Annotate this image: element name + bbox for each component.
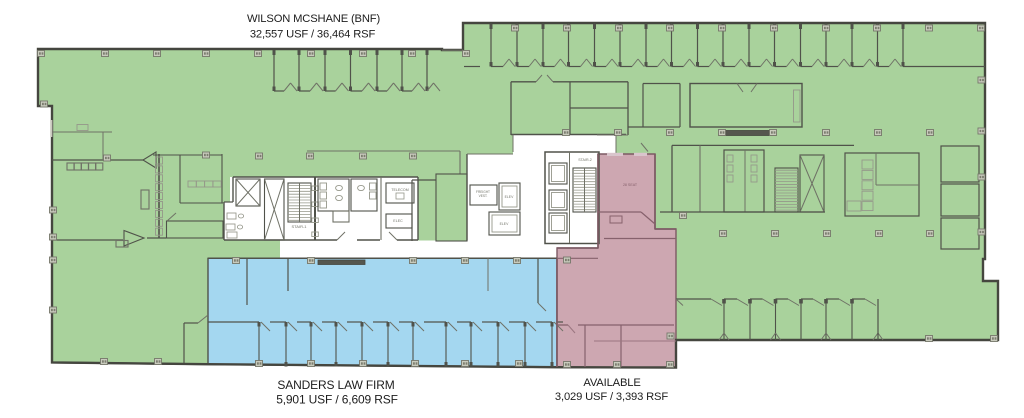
svg-text:SANDERS LAW FIRM: SANDERS LAW FIRM (277, 378, 394, 392)
svg-text:5,901 USF / 6,609 RSF: 5,901 USF / 6,609 RSF (276, 393, 398, 407)
svg-text:ELEV: ELEV (500, 222, 509, 226)
svg-text:AVAILABLE: AVAILABLE (583, 377, 640, 389)
svg-text:WILSON MCSHANE (BNF): WILSON MCSHANE (BNF) (247, 13, 381, 25)
svg-text:VEST.: VEST. (479, 194, 488, 198)
svg-text:ELEV: ELEV (505, 195, 514, 199)
svg-text:3,029 USF / 3,393 RSF: 3,029 USF / 3,393 RSF (555, 391, 668, 403)
svg-text:ELEC: ELEC (393, 219, 403, 223)
svg-text:28 SEAT: 28 SEAT (623, 183, 638, 187)
svg-text:STAIR-1: STAIR-1 (291, 224, 307, 229)
svg-text:32,557 USF / 36,464 RSF: 32,557 USF / 36,464 RSF (250, 29, 376, 41)
svg-text:STAIR-2: STAIR-2 (578, 158, 592, 162)
svg-text:TELECOM: TELECOM (391, 188, 408, 192)
